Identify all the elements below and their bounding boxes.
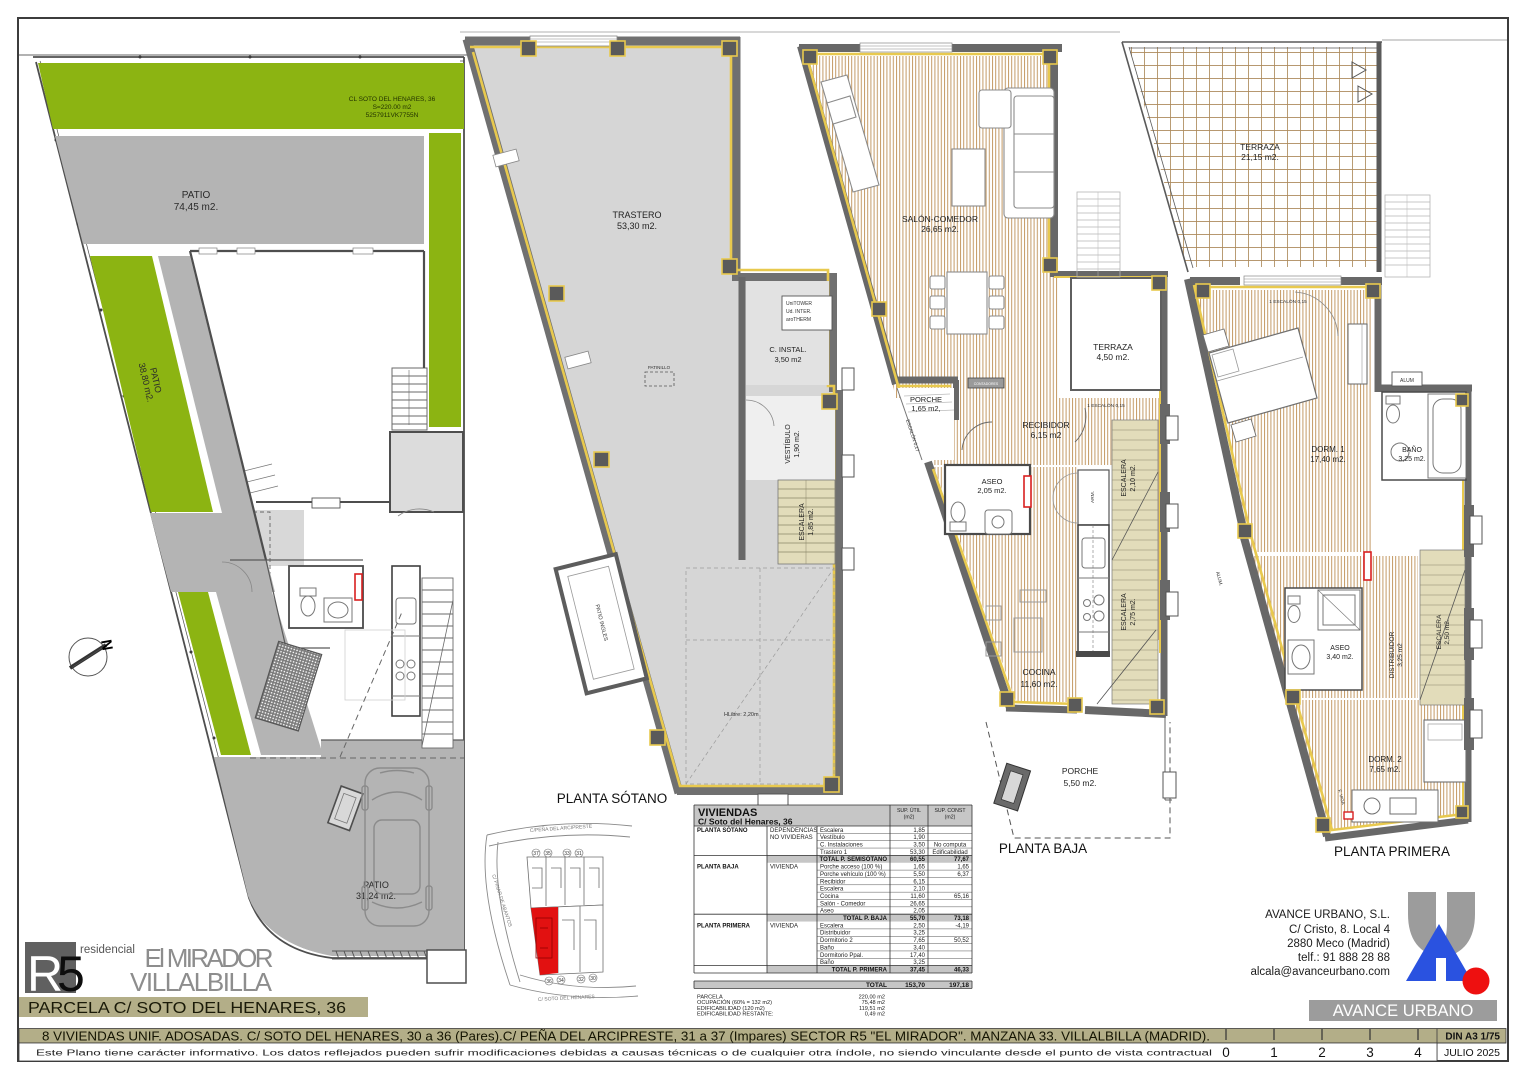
svg-text:C/ PINAR DE ABANTOS: C/ PINAR DE ABANTOS	[490, 874, 513, 929]
svg-text:PLANTA PRIMERA: PLANTA PRIMERA	[697, 923, 751, 929]
svg-text:3,25: 3,25	[913, 960, 925, 966]
svg-text:3,40: 3,40	[913, 945, 925, 951]
svg-text:Aseo: Aseo	[820, 909, 834, 915]
svg-text:TOTAL: TOTAL	[866, 982, 887, 989]
svg-text:VIVIENDA: VIVIENDA	[770, 923, 798, 929]
svg-text:PATIO: PATIO	[182, 190, 211, 201]
svg-text:53,30: 53,30	[910, 850, 926, 856]
svg-text:PORCHE: PORCHE	[910, 395, 942, 404]
svg-text:65,16: 65,16	[954, 894, 970, 900]
svg-text:Dormitorio Ppal.: Dormitorio Ppal.	[820, 953, 863, 959]
svg-text:5257911VK7755N: 5257911VK7755N	[366, 112, 419, 119]
svg-text:2,05: 2,05	[913, 909, 925, 915]
svg-text:TERRAZA: TERRAZA	[1093, 342, 1133, 352]
svg-text:0,49 m2: 0,49 m2	[865, 1011, 885, 1017]
svg-text:197,18: 197,18	[949, 982, 969, 989]
svg-text:JULIO 2025: JULIO 2025	[1444, 1047, 1500, 1059]
svg-text:CONTADORES: CONTADORES	[974, 382, 999, 386]
svg-text:aroTHERM: aroTHERM	[786, 317, 811, 323]
svg-text:Escalera: Escalera	[820, 828, 844, 834]
svg-text:55,70: 55,70	[910, 916, 926, 922]
svg-text:DIN A3 1/75: DIN A3 1/75	[1445, 1032, 1500, 1043]
svg-text:36: 36	[546, 979, 552, 985]
svg-text:2880 Meco (Madrid): 2880 Meco (Madrid)	[1287, 938, 1390, 950]
svg-text:EDIFICABILIDAD RESTANTE:: EDIFICABILIDAD RESTANTE:	[697, 1011, 774, 1017]
svg-text:3: 3	[1366, 1045, 1374, 1060]
svg-text:Salón - Comedor: Salón - Comedor	[820, 901, 865, 907]
svg-text:Porche acceso (100 %): Porche acceso (100 %)	[820, 865, 882, 871]
svg-text:3,25 m2.: 3,25 m2.	[1398, 456, 1425, 463]
svg-text:BAÑO: BAÑO	[1402, 445, 1422, 454]
svg-text:ALUM.: ALUM.	[1214, 571, 1224, 587]
svg-text:2: 2	[1318, 1045, 1326, 1060]
svg-text:1: 1	[1270, 1045, 1278, 1060]
svg-text:5,50: 5,50	[913, 872, 925, 878]
svg-text:PLANTA BAJA: PLANTA BAJA	[697, 865, 739, 871]
svg-text:DEPENDENCIAS: DEPENDENCIAS	[770, 828, 817, 834]
svg-text:2,50: 2,50	[913, 923, 925, 929]
svg-text:VILLALBILLA: VILLALBILLA	[130, 967, 273, 997]
svg-text:4: 4	[1414, 1045, 1422, 1060]
svg-text:S=220.00 m2: S=220.00 m2	[373, 104, 412, 111]
svg-text:73,18: 73,18	[954, 916, 970, 922]
svg-text:32: 32	[578, 977, 584, 983]
svg-text:NO VIVIDERAS: NO VIVIDERAS	[770, 835, 813, 841]
svg-text:Distribuidor: Distribuidor	[820, 931, 850, 937]
svg-text:26,65: 26,65	[910, 901, 926, 907]
svg-text:50,52: 50,52	[954, 938, 970, 944]
svg-text:UniTOWER: UniTOWER	[786, 301, 812, 307]
svg-text:Baño: Baño	[820, 945, 835, 951]
svg-text:PARCELA C/ SOTO DEL HENARES,: PARCELA C/ SOTO DEL HENARES, 36	[28, 1000, 346, 1017]
svg-text:37,45: 37,45	[910, 967, 926, 973]
svg-text:1,90: 1,90	[913, 835, 925, 841]
svg-text:74,45 m2.: 74,45 m2.	[174, 202, 218, 213]
svg-text:Recibidor: Recibidor	[820, 879, 845, 885]
svg-text:PORCHE: PORCHE	[1062, 766, 1099, 776]
svg-text:TOTAL P. PRIMERA: TOTAL P. PRIMERA	[832, 967, 888, 973]
svg-text:6,37: 6,37	[957, 872, 969, 878]
svg-text:AVANCE URBANO: AVANCE URBANO	[1333, 1002, 1474, 1020]
svg-text:Trastero 1: Trastero 1	[820, 850, 848, 856]
svg-text:Ud. INTER.: Ud. INTER.	[786, 309, 812, 315]
svg-text:residencial: residencial	[80, 944, 135, 956]
svg-text:4,50 m2.: 4,50 m2.	[1096, 352, 1129, 362]
svg-text:1 ESCALÓN 0,15: 1 ESCALÓN 0,15	[1269, 298, 1307, 305]
svg-text:PATINILLO: PATINILLO	[648, 365, 671, 370]
svg-text:DORM. 2: DORM. 2	[1368, 755, 1402, 764]
svg-text:3,25: 3,25	[913, 931, 925, 937]
svg-text:ASEO: ASEO	[982, 477, 1003, 486]
svg-text:Vestíbulo: Vestíbulo	[820, 835, 845, 841]
svg-text:2,05 m2.: 2,05 m2.	[977, 486, 1006, 495]
svg-text:17,40 m2.: 17,40 m2.	[1310, 455, 1346, 464]
svg-text:C/ SOTO DEL HENARES: C/ SOTO DEL HENARES	[538, 994, 596, 1003]
svg-text:3,40 m2.: 3,40 m2.	[1326, 654, 1353, 661]
svg-text:5,50 m2.: 5,50 m2.	[1063, 778, 1096, 788]
svg-text:Dormitorio 2: Dormitorio 2	[820, 938, 853, 944]
svg-text:34: 34	[558, 978, 564, 984]
svg-text:C/ Soto del Henares, 36: C/ Soto del Henares, 36	[698, 817, 793, 827]
svg-text:DORM. 1: DORM. 1	[1311, 445, 1345, 454]
svg-text:TRASTERO: TRASTERO	[612, 210, 661, 220]
svg-text:1,65 m2,: 1,65 m2,	[911, 404, 940, 413]
svg-text:RECIBIDOR: RECIBIDOR	[1022, 420, 1069, 430]
svg-text:PLANTA SÓTANO: PLANTA SÓTANO	[697, 826, 748, 834]
svg-text:Edificabilidad: Edificabilidad	[932, 850, 967, 856]
svg-text:(m2): (m2)	[904, 815, 915, 821]
svg-text:17,40: 17,40	[910, 953, 926, 959]
svg-text:3,50: 3,50	[913, 843, 925, 849]
svg-text:SUP. CONST: SUP. CONST	[934, 808, 966, 814]
svg-text:6,15: 6,15	[913, 879, 925, 885]
svg-text:(m2): (m2)	[945, 815, 956, 821]
svg-text:PLANTA PRIMERA: PLANTA PRIMERA	[1334, 844, 1450, 859]
svg-text:1,85: 1,85	[913, 828, 925, 834]
svg-text:6,15 m2: 6,15 m2	[1031, 430, 1062, 440]
svg-text:11,60 m2.: 11,60 m2.	[1020, 679, 1057, 689]
svg-text:1,65: 1,65	[913, 865, 925, 871]
svg-text:Este Plano tiene carácter info: Este Plano tiene carácter informativo. L…	[36, 1049, 1212, 1058]
svg-text:No computa: No computa	[934, 843, 967, 849]
svg-text:77,67: 77,67	[954, 857, 970, 863]
svg-text:Baño: Baño	[820, 960, 835, 966]
svg-text:26,65 m2.: 26,65 m2.	[921, 224, 959, 234]
svg-text:TOTAL P. BAJA: TOTAL P. BAJA	[843, 916, 888, 922]
svg-text:60,55: 60,55	[910, 857, 926, 863]
svg-text:-4,19: -4,19	[955, 923, 969, 929]
svg-text:Escalera: Escalera	[820, 923, 844, 929]
svg-text:AVANCE URBANO, S.L.: AVANCE URBANO, S.L.	[1265, 909, 1390, 921]
svg-text:53,30 m2.: 53,30 m2.	[617, 221, 657, 231]
svg-text:0: 0	[1222, 1045, 1230, 1060]
svg-text:35: 35	[545, 851, 551, 857]
svg-text:N: N	[97, 638, 116, 652]
svg-text:TERRAZA: TERRAZA	[1240, 142, 1280, 152]
svg-text:11,60: 11,60	[910, 894, 925, 900]
svg-text:21,15 m2.: 21,15 m2.	[1241, 152, 1279, 162]
svg-text:3,50 m2: 3,50 m2	[774, 355, 801, 364]
svg-text:TOTAL P. SEMISÓTANO: TOTAL P. SEMISÓTANO	[820, 855, 888, 863]
svg-text:C/ Cristo, 8. Local 4: C/ Cristo, 8. Local 4	[1289, 924, 1391, 936]
svg-text:C. Instalaciones: C. Instalaciones	[820, 843, 863, 849]
svg-text:HLibre: 2,20m: HLibre: 2,20m	[724, 712, 759, 718]
svg-text:PATIO: PATIO	[363, 880, 389, 890]
svg-text:37: 37	[533, 851, 539, 857]
svg-text:alcala@avanceurbano.com: alcala@avanceurbano.com	[1250, 966, 1390, 978]
svg-text:153,70: 153,70	[905, 982, 925, 989]
svg-text:C. INSTAL.: C. INSTAL.	[769, 345, 806, 354]
svg-text:1,65: 1,65	[957, 865, 969, 871]
svg-text:VIVIENDA: VIVIENDA	[770, 865, 798, 871]
svg-text:SUP. ÚTIL: SUP. ÚTIL	[897, 807, 921, 814]
svg-text:PLANTA SÓTANO: PLANTA SÓTANO	[557, 791, 668, 806]
svg-text:SALÓN-COMEDOR: SALÓN-COMEDOR	[902, 214, 978, 224]
svg-text:33: 33	[564, 851, 570, 857]
svg-text:Escalera: Escalera	[820, 887, 844, 893]
svg-text:CL SOTO DEL HENARES, 36: CL SOTO DEL HENARES, 36	[349, 96, 436, 103]
svg-text:COCINA: COCINA	[1022, 667, 1055, 677]
svg-text:1 ESCALÓN 0,15: 1 ESCALÓN 0,15	[1087, 402, 1125, 409]
svg-text:ARM.: ARM.	[1090, 491, 1096, 503]
svg-text:7,65: 7,65	[913, 938, 925, 944]
svg-text:Porche vehículo (100 %): Porche vehículo (100 %)	[820, 872, 886, 878]
svg-text:PLANTA BAJA: PLANTA BAJA	[999, 841, 1087, 856]
svg-text:2,10: 2,10	[913, 887, 925, 893]
svg-text:46,33: 46,33	[954, 967, 970, 973]
svg-text:Cocina: Cocina	[820, 894, 839, 900]
svg-text:31: 31	[576, 851, 582, 857]
svg-text:30: 30	[590, 976, 596, 982]
svg-text:7,65 m2.: 7,65 m2.	[1369, 765, 1400, 774]
svg-text:ALUM: ALUM	[1400, 378, 1414, 384]
svg-text:telf.: 91 888 28 88: telf.: 91 888 28 88	[1298, 952, 1390, 964]
svg-text:8 VIVIENDAS UNIF. ADOSADAS. C: 8 VIVIENDAS UNIF. ADOSADAS. C/ SOTO DEL …	[42, 1029, 1210, 1044]
svg-text:ASEO: ASEO	[1330, 645, 1350, 652]
